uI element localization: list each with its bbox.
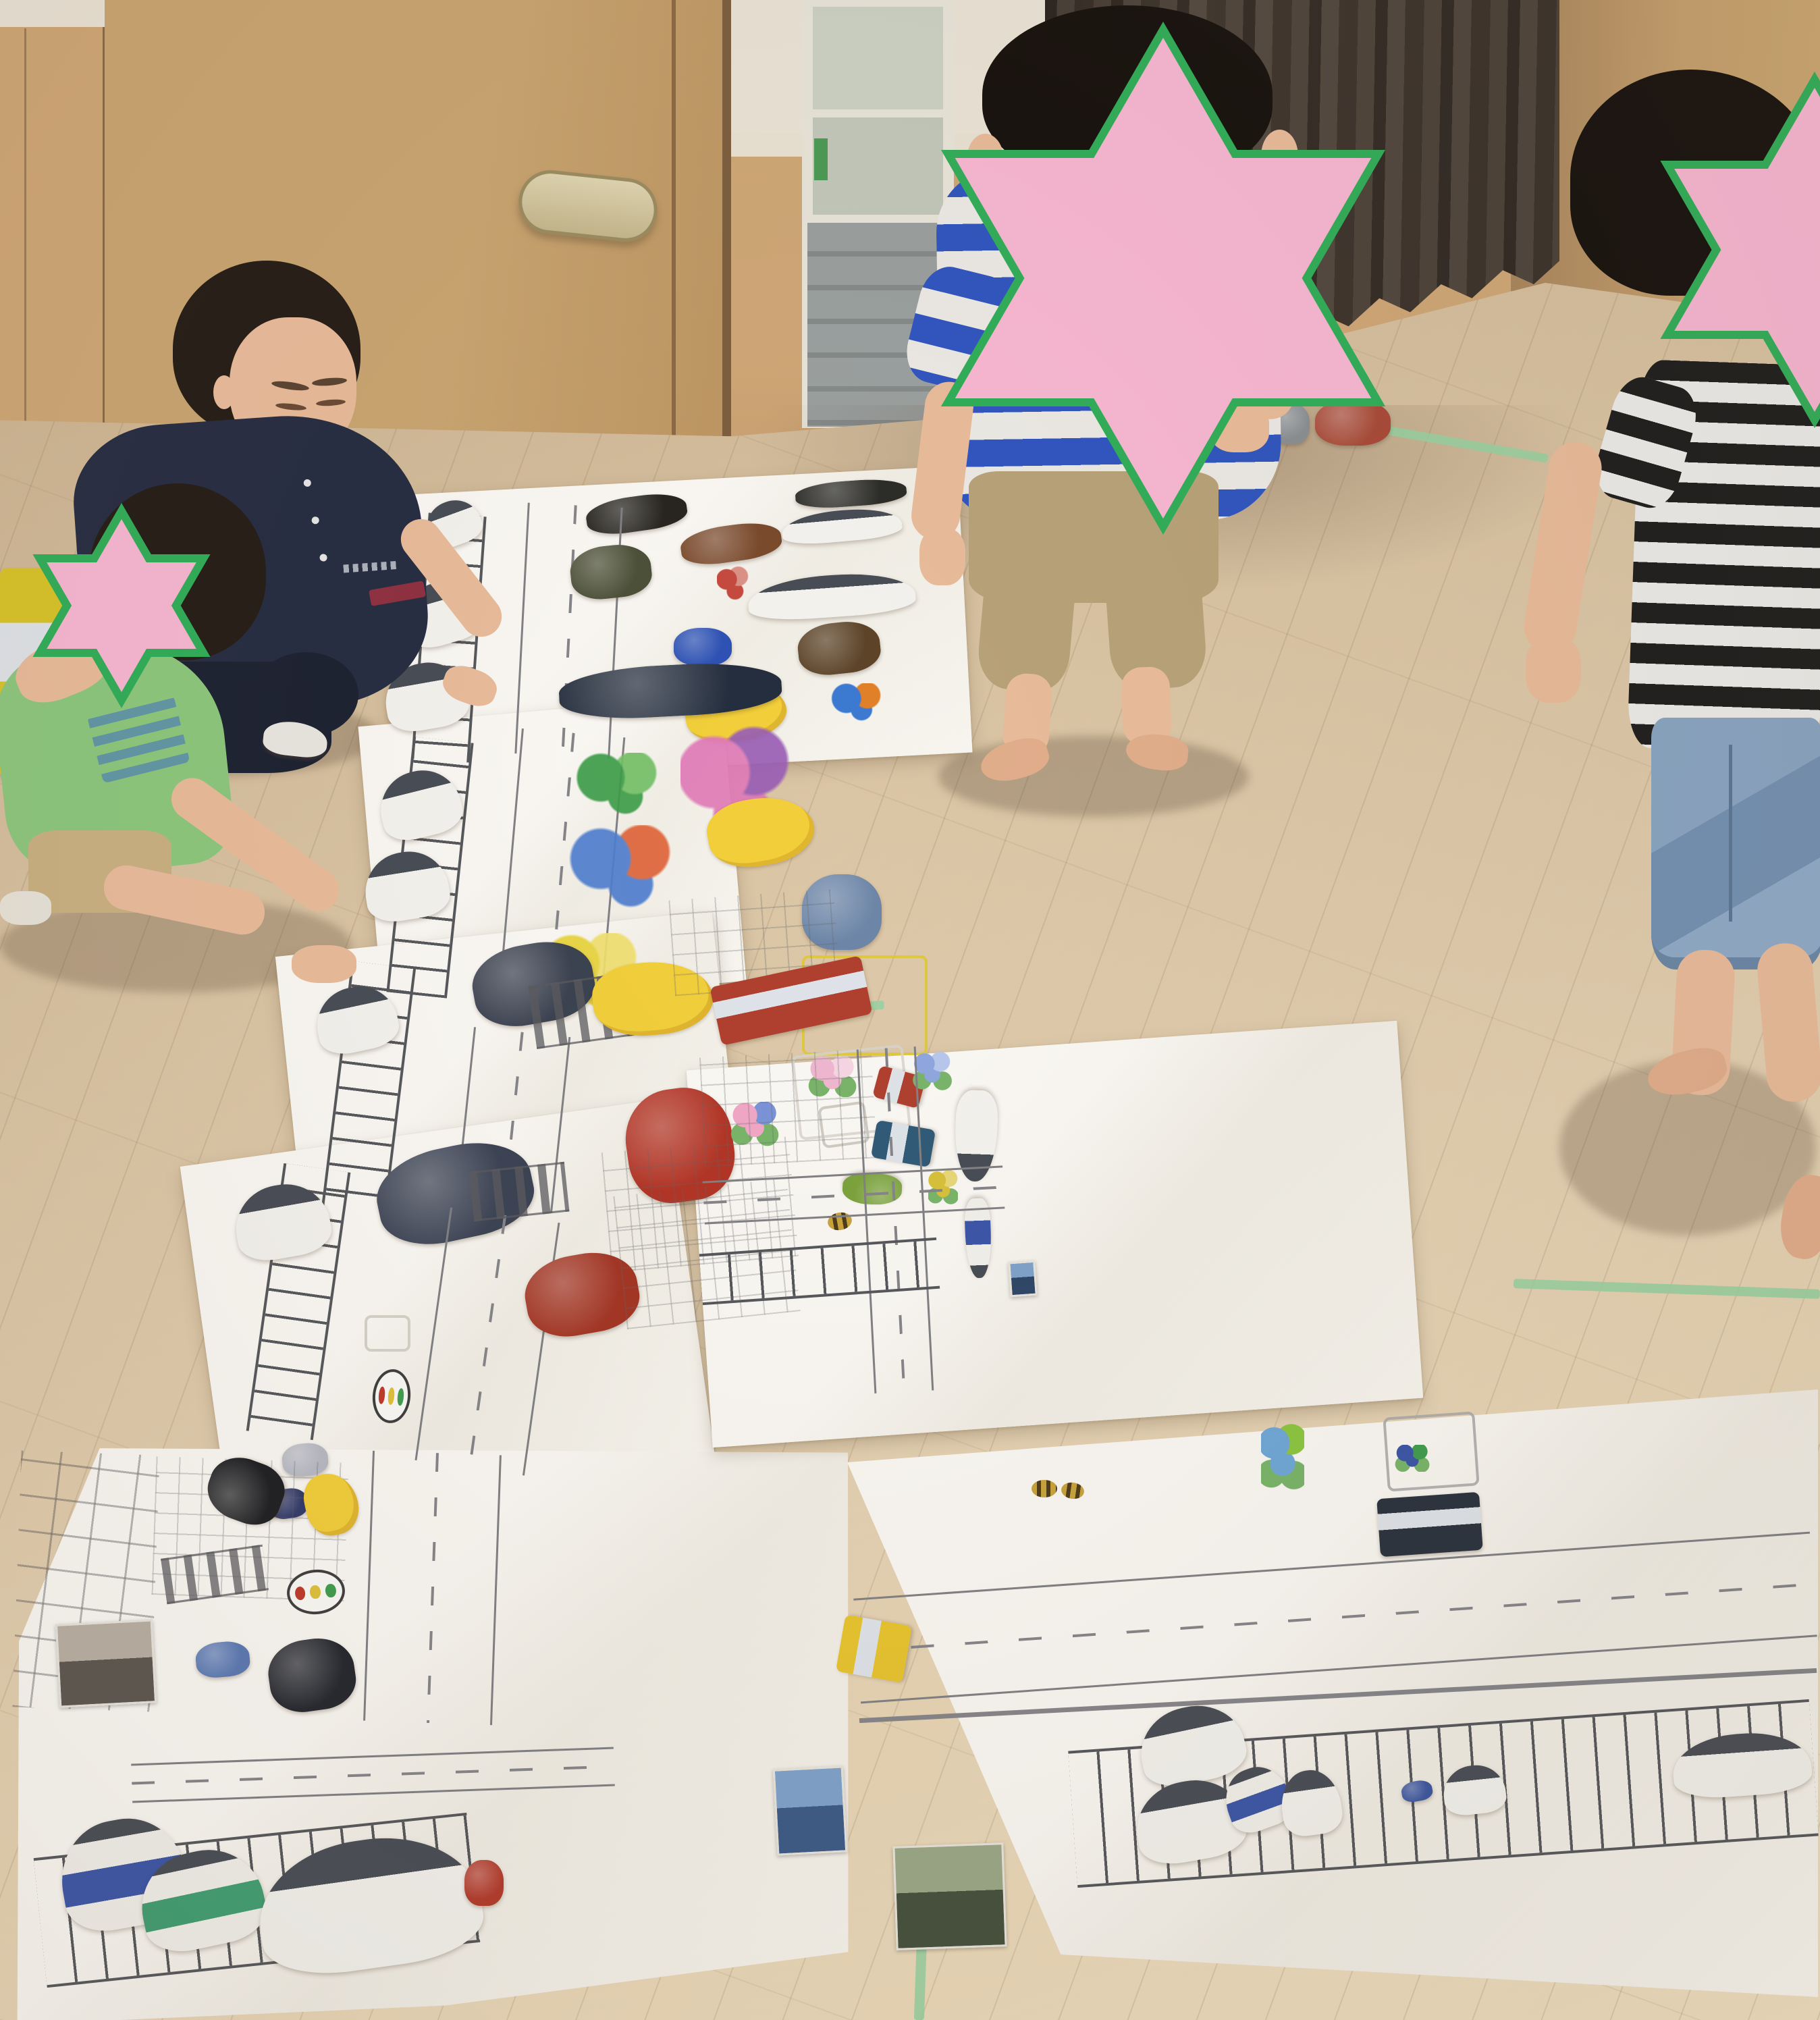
star-right-boy-shape [1667,80,1820,420]
star-right-boy [1632,68,1820,432]
privacy-stars-layer [0,0,1820,2020]
star-left-child [15,499,228,712]
star-left-child-shape [40,511,203,700]
playroom-photo [0,0,1820,2020]
star-middle-boy [903,18,1424,539]
star-middle-boy-shape [948,30,1378,527]
